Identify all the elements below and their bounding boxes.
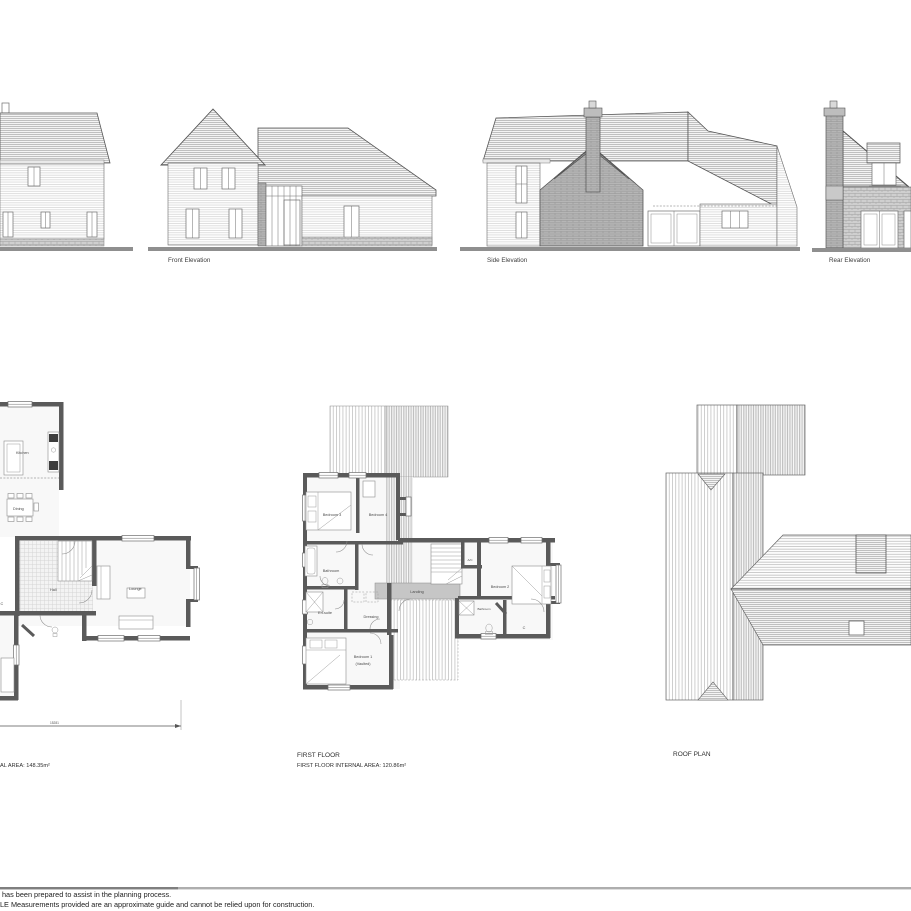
roof-chimney-box [856,535,886,573]
first-floor-area-text: FIRST FLOOR INTERNAL AREA: 120.86m² [297,763,406,769]
left-windows [516,166,527,238]
dimension-text: 15281 [50,721,59,725]
rear-elevation-label: Rear Elevation [829,257,871,264]
roof-plan-title: ROOF PLAN [673,751,711,758]
front-elevation: Front Elevation [148,109,437,264]
glazed-entrance [266,186,302,246]
side-elevation-label: Side Elevation [487,257,528,264]
kitchen-counter [48,432,59,472]
bathroom-label: Bathroom [323,569,339,573]
dormer [867,143,901,186]
bedroom4-closet [363,481,375,497]
bedroom1-bed [306,638,346,684]
side-room-sofa [1,658,14,692]
brick-pier [258,183,266,246]
gable-roof [161,109,265,165]
eaves-band [0,160,104,164]
bathroom2-label: Bathroom [477,607,491,611]
cupboard-label: C [1,602,4,606]
dressing-label: Dressing [364,615,379,619]
rooflight [849,621,864,635]
chimney [586,117,600,192]
chimney-cap [824,108,845,116]
rear-elevation: Rear Elevation [812,101,911,264]
roof [0,113,110,163]
front-elevation-label: Front Elevation [168,257,211,264]
right-window [722,211,748,228]
hall-label: Hall [50,588,57,592]
wc-symbol [52,627,58,637]
roof-hatch-left [330,406,386,477]
top-wing-left-slope [697,405,737,475]
lounge-label: Lounge [129,587,142,591]
bedroom2-bed [512,566,551,604]
ac-label: A/C [467,558,473,562]
bedroom3-label: Bedroom 3 [323,513,342,517]
plan-drawing-canvas: Front Elevation Side Elevation [0,0,911,911]
top-wing-right-slope [737,405,805,475]
chimney-pot [830,101,837,108]
roof-plan: ROOF PLAN [666,405,911,758]
plinth [0,239,104,246]
ground-line [0,247,133,251]
left-wall [487,163,540,246]
bedroom1-sub-label: (Vaulted) [355,662,371,666]
footer: has been prepared to assist in the plann… [0,887,911,909]
ensuite-label: En-suite [318,611,332,615]
bedroom1-label: Bedroom 1 [354,655,373,659]
drawing-sheet: Front Elevation Side Elevation [0,0,911,911]
plinth [302,237,432,246]
roof-hatch-right [386,406,448,477]
void-hatch-lower [390,600,458,680]
chimney-pot [589,101,596,108]
ground-line [460,247,800,251]
chimney-cap [584,108,602,117]
landing-label: Landing [410,590,424,594]
kitchen-label: Kitchen [16,451,29,455]
angled-wall [22,625,34,636]
right-wing-lower-slope [731,589,911,645]
cupboard2-label: C [523,626,526,630]
first-floor-title: FIRST FLOOR [297,752,340,759]
chimney [2,103,9,113]
bedroom3-bed [306,492,351,530]
stairs [431,544,462,584]
chimney [826,112,843,248]
eaves-band [483,159,550,163]
right-gable-return [777,146,797,246]
main-roof-left-slope [666,473,733,700]
ground-line [148,247,437,251]
footer-line1: has been prepared to assist in the plann… [2,890,171,899]
bedroom4-label: Bedroom 4 [369,513,388,517]
stairs [58,541,92,581]
ground-floor-area-text: AL AREA: 148.35m² [0,763,50,769]
first-floor-plan: Bedroom 3 Bedroom 4 Bathroom En-suite Dr… [297,406,561,769]
dining-label: Dining [13,507,24,511]
partial-elevation [0,103,133,251]
ground-line [812,248,911,252]
bedroom2-label: Bedroom 2 [491,585,510,589]
dimension-line: 15281 [0,700,181,730]
sliding-doors [648,211,700,246]
gable-wall [168,163,258,245]
side-elevation: Side Elevation [460,101,800,264]
lower-roof [688,112,777,207]
chimney-band [826,186,843,200]
footer-line2: LE Measurements provided are an approxim… [0,900,314,909]
ground-floor-plan: Kitchen Dining Hall Lounge C 15281 AL AR… [0,402,200,770]
kitchen-island [4,441,23,475]
